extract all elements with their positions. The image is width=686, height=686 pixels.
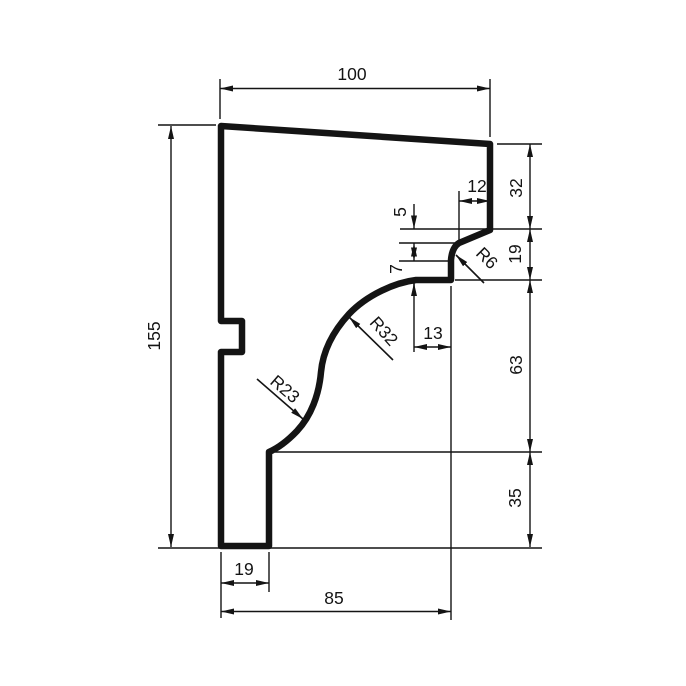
- radius-label-r23: R23: [266, 371, 303, 407]
- dim-label-step-7: 7: [386, 264, 406, 274]
- dim-label-height: 155: [144, 321, 164, 350]
- radius-label-r32: R32: [366, 312, 402, 349]
- dim-label-top-width: 100: [337, 64, 366, 84]
- dim-label-right-63: 63: [506, 355, 526, 374]
- extension-lines: [158, 79, 542, 620]
- radius-label-r6: R6: [472, 243, 502, 273]
- dim-label-soffit-13: 13: [423, 323, 442, 343]
- drawing-canvas: 100 155 32 19 63 35 12 5 7 13 19 85 R6 R…: [0, 0, 686, 686]
- dim-label-drip-5: 5: [390, 207, 410, 217]
- dim-label-drip-12: 12: [467, 176, 486, 196]
- dim-label-bottom-85: 85: [324, 588, 343, 608]
- dim-label-right-19: 19: [505, 244, 525, 263]
- profile-outline: [221, 126, 490, 546]
- dim-label-right-32: 32: [506, 178, 526, 197]
- dim-label-right-35: 35: [505, 488, 525, 507]
- dim-label-bottom-19: 19: [234, 559, 253, 579]
- technical-drawing: 100 155 32 19 63 35 12 5 7 13 19 85 R6 R…: [0, 0, 686, 686]
